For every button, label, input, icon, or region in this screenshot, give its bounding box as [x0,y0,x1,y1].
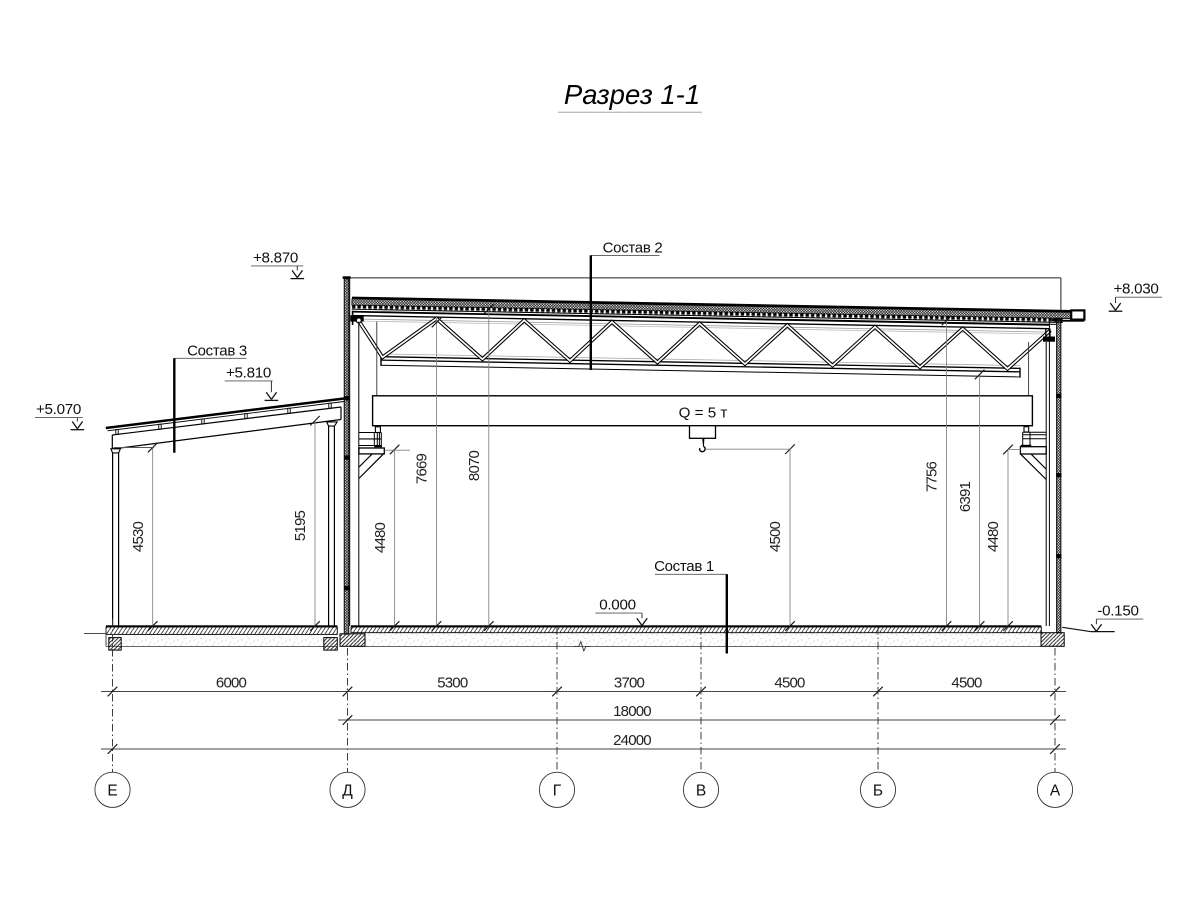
svg-text:+8.870: +8.870 [253,249,298,266]
svg-text:7669: 7669 [414,453,431,484]
svg-text:4480: 4480 [985,521,1002,552]
svg-text:6000: 6000 [216,674,247,691]
svg-text:Состав 2: Состав 2 [603,240,663,257]
svg-text:Состав 3: Состав 3 [187,342,247,359]
svg-text:24000: 24000 [613,732,651,749]
svg-text:5195: 5195 [292,510,309,541]
svg-text:Б: Б [873,782,883,799]
svg-text:А: А [1050,782,1061,799]
svg-text:Состав 1: Состав 1 [654,558,714,575]
svg-text:4530: 4530 [130,521,147,552]
svg-text:5300: 5300 [437,674,468,691]
svg-text:4500: 4500 [951,674,982,691]
svg-text:3700: 3700 [614,674,645,691]
svg-text:4480: 4480 [372,522,389,553]
svg-text:4500: 4500 [774,674,805,691]
svg-text:+5.810: +5.810 [226,364,271,381]
svg-text:Г: Г [553,782,562,799]
svg-text:0.000: 0.000 [599,597,636,614]
svg-text:Разрез 1-1: Разрез 1-1 [564,79,700,110]
svg-text:+8.030: +8.030 [1113,281,1158,298]
svg-text:8070: 8070 [466,450,483,481]
svg-text:4500: 4500 [767,521,784,552]
svg-text:18000: 18000 [613,703,651,720]
svg-text:В: В [696,782,706,799]
svg-text:+5.070: +5.070 [36,401,81,418]
svg-text:Д: Д [342,782,353,799]
svg-text:Е: Е [107,782,117,799]
svg-text:Q = 5 т: Q = 5 т [679,405,728,422]
svg-text:6391: 6391 [957,481,974,512]
svg-text:7756: 7756 [924,461,941,492]
svg-text:-0.150: -0.150 [1097,603,1138,620]
